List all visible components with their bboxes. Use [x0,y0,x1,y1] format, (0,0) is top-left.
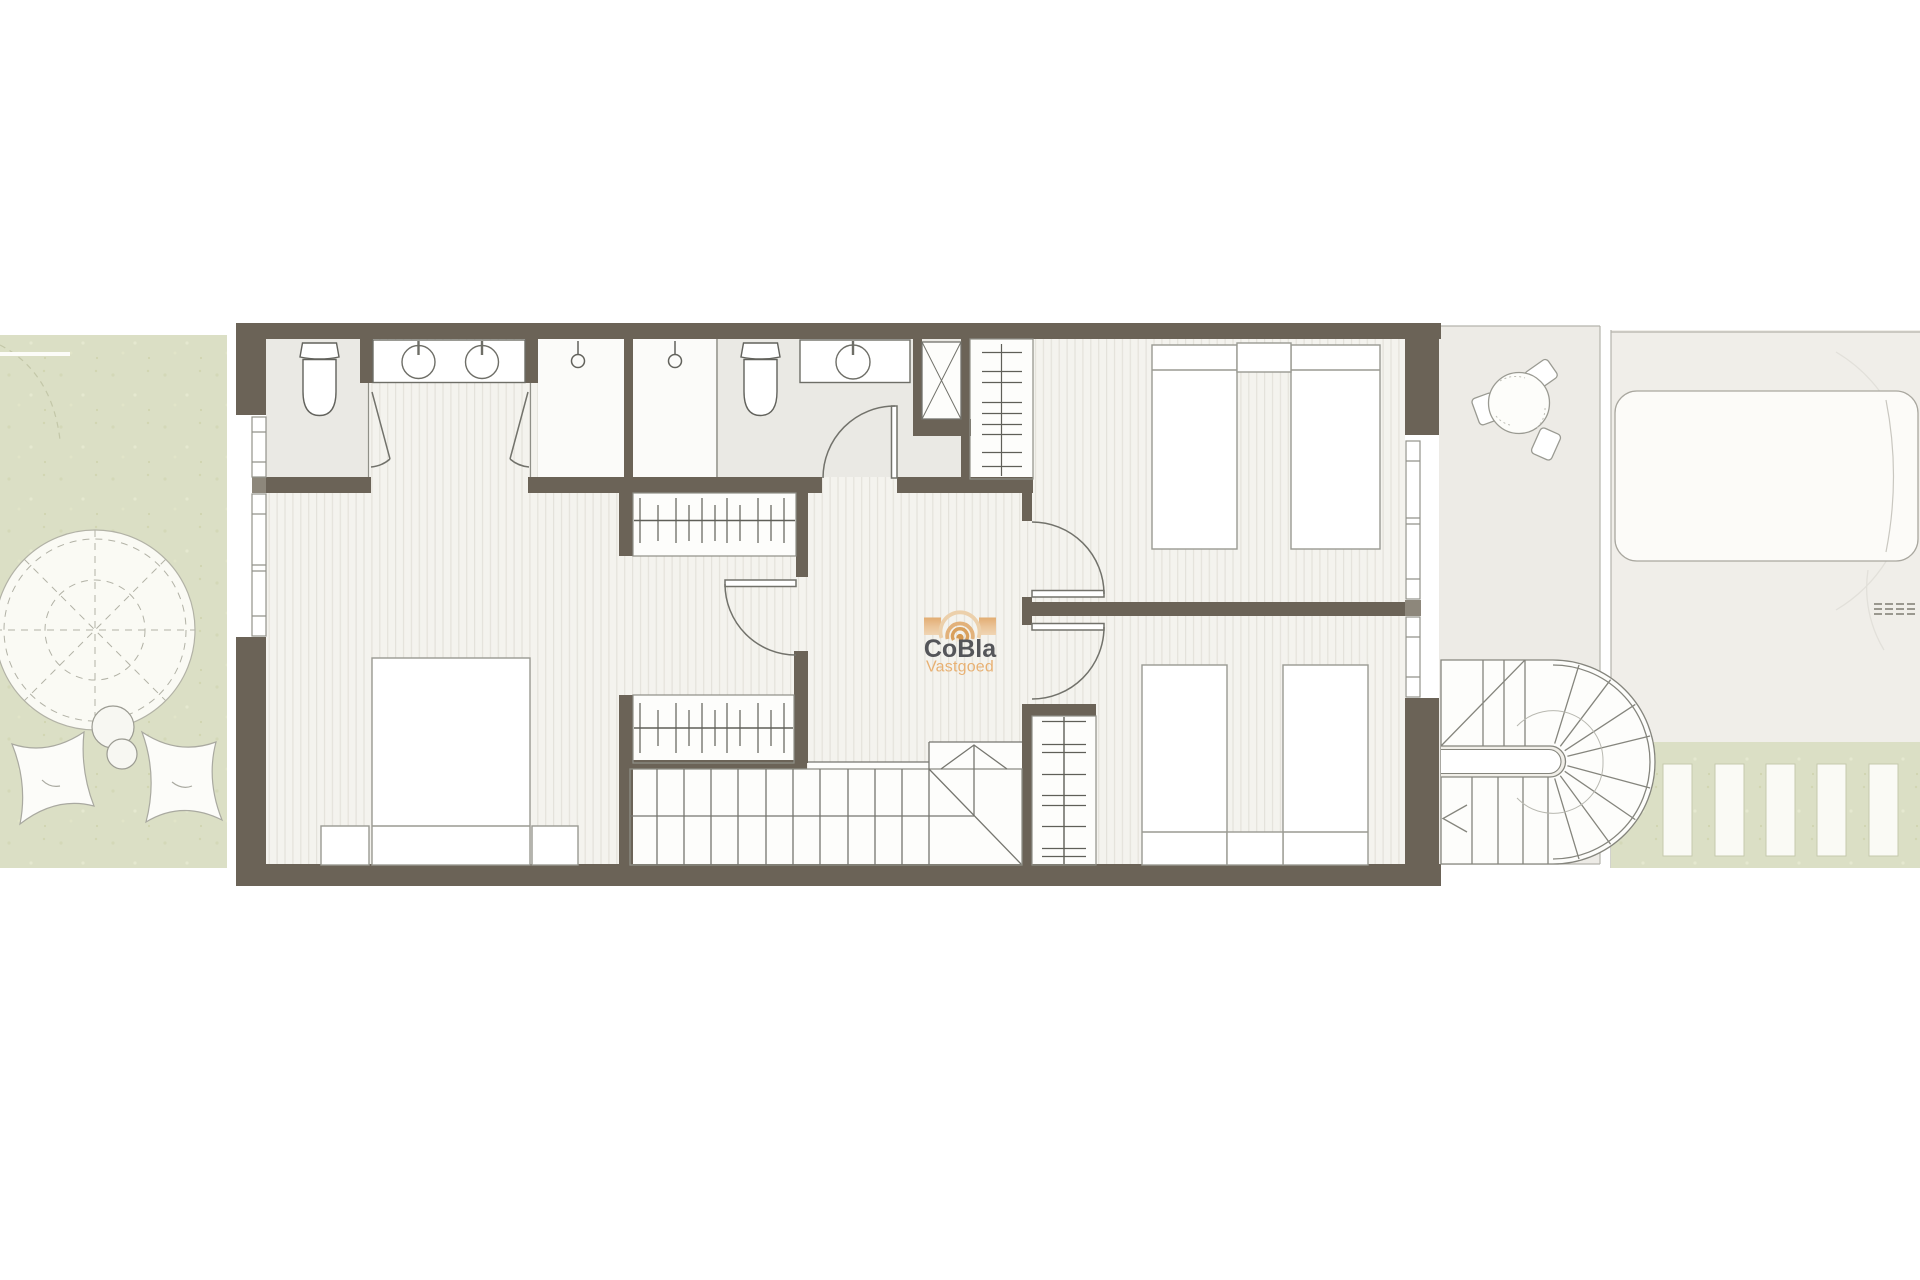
svg-text:Vastgoed: Vastgoed [926,659,994,676]
